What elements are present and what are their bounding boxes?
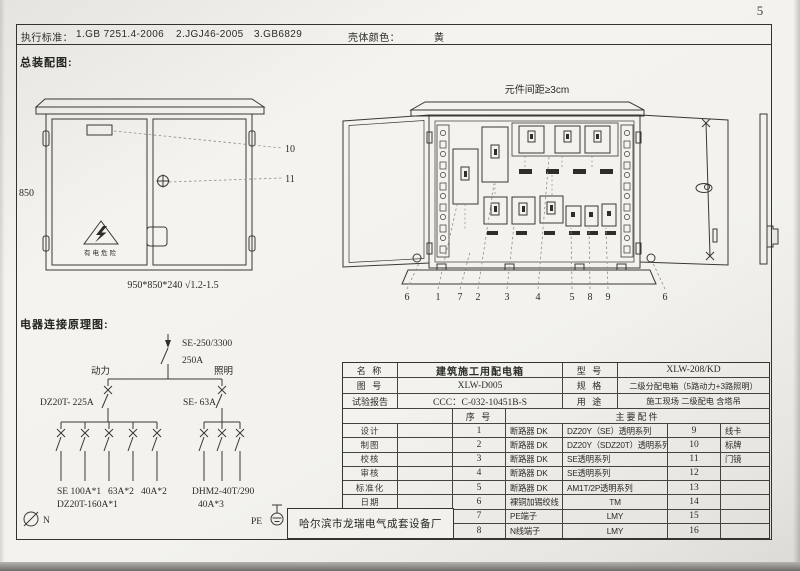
part-row-name: 断路器 DK bbox=[506, 438, 563, 452]
part-row-seq2: 12 bbox=[668, 467, 721, 481]
danger-label: 有电危险 bbox=[84, 248, 118, 257]
open-view-callouts: 6 1 7 2 3 4 5 8 9 6 bbox=[405, 292, 668, 303]
part-row-series: LMY bbox=[563, 524, 668, 538]
svg-text:40A*2: 40A*2 bbox=[141, 487, 167, 497]
part-row-name2: 线卡 bbox=[721, 424, 769, 438]
drawing-no-label: 图 号 bbox=[343, 378, 398, 394]
part-row-series: DZ20Y（SDZ20T）透明系列 bbox=[563, 438, 668, 452]
svg-text:N: N bbox=[43, 516, 50, 526]
role-design: 设计 bbox=[343, 424, 398, 438]
svg-text:SE-250/3300: SE-250/3300 bbox=[182, 339, 232, 349]
assembly-section-title: 总装配图: bbox=[20, 54, 73, 70]
shell-color-value: 黄 bbox=[434, 29, 444, 44]
door-stop bbox=[147, 227, 167, 246]
part-row-series: SE透明系列 bbox=[563, 467, 668, 481]
seq-header: 序 号 bbox=[453, 409, 506, 424]
spec-label: 规 格 bbox=[563, 378, 618, 394]
part-row-seq: 7 bbox=[453, 510, 506, 524]
part-row-seq2: 13 bbox=[668, 481, 721, 495]
svg-text:9: 9 bbox=[606, 292, 611, 303]
size-note: 950*850*240 √1.2-1.5 bbox=[127, 280, 218, 291]
svg-text:PE: PE bbox=[251, 517, 262, 527]
part-row-name: 断路器 DK bbox=[506, 453, 563, 467]
part-row-series: SE透明系列 bbox=[563, 453, 668, 467]
svg-text:7: 7 bbox=[458, 292, 463, 303]
svg-text:6: 6 bbox=[663, 292, 668, 303]
role-draft: 制图 bbox=[343, 438, 398, 452]
usage-value: 施工现场 二级配电 含塔吊 bbox=[618, 394, 769, 409]
part-row-seq2: 16 bbox=[668, 524, 721, 538]
part-row-seq2: 14 bbox=[668, 495, 721, 509]
part-row-series: AM1T/2P透明系列 bbox=[563, 481, 668, 495]
svg-text:动力: 动力 bbox=[91, 365, 110, 377]
svg-text:8: 8 bbox=[588, 292, 593, 303]
part-row-name2 bbox=[721, 495, 769, 509]
blank-cell bbox=[398, 453, 453, 467]
part-row-seq: 6 bbox=[453, 495, 506, 509]
part-row-series: TM bbox=[563, 495, 668, 509]
report-label: 试验报告 bbox=[343, 394, 398, 409]
cabinet-front-view bbox=[36, 99, 282, 270]
name-label: 名 称 bbox=[343, 363, 398, 378]
schematic-section-title: 电器连接原理图: bbox=[20, 316, 109, 332]
svg-text:2: 2 bbox=[476, 292, 481, 303]
cabinet-open-view bbox=[343, 102, 778, 289]
part-row-name: 断路器 DK bbox=[506, 481, 563, 495]
part-row-name2 bbox=[721, 481, 769, 495]
spec-value: 二级分配电箱（5路动力+3路照明） bbox=[618, 378, 769, 394]
svg-text:DHM2-40T/290: DHM2-40T/290 bbox=[192, 487, 255, 497]
neutral-symbol bbox=[24, 512, 38, 526]
svg-text:3: 3 bbox=[505, 292, 510, 303]
role-standardize: 标准化 bbox=[343, 481, 398, 495]
parts-header: 主要配件 bbox=[506, 409, 769, 424]
part-row-seq: 5 bbox=[453, 481, 506, 495]
header-divider bbox=[16, 44, 771, 45]
electric-danger-icon bbox=[84, 221, 118, 244]
blank-cell bbox=[398, 438, 453, 452]
blank-cell bbox=[398, 467, 453, 481]
height-dimension: 850 bbox=[19, 188, 34, 199]
part-row-name: 裸铜加锡绞线 bbox=[506, 495, 563, 509]
part-row-seq2: 11 bbox=[668, 453, 721, 467]
door-handle-lock bbox=[157, 175, 170, 188]
svg-text:SE- 63A: SE- 63A bbox=[183, 398, 216, 408]
blank-cell bbox=[398, 481, 453, 495]
part-row-name2 bbox=[721, 467, 769, 481]
usage-label: 用 途 bbox=[563, 394, 618, 409]
svg-text:DZ20T- 225A: DZ20T- 225A bbox=[40, 398, 94, 408]
standard-2: 2.JGJ46-2005 bbox=[176, 29, 244, 40]
part-row-seq2: 9 bbox=[668, 424, 721, 438]
blank-cell bbox=[343, 409, 453, 424]
svg-text:40A*3: 40A*3 bbox=[198, 500, 224, 510]
svg-text:5: 5 bbox=[570, 292, 575, 303]
part-row-name: 断路器 DK bbox=[506, 424, 563, 438]
part-row-seq: 2 bbox=[453, 438, 506, 452]
part-row-seq: 3 bbox=[453, 453, 506, 467]
name-value: 建筑施工用配电箱 bbox=[398, 363, 563, 378]
svg-text:DZ20T-160A*1: DZ20T-160A*1 bbox=[57, 500, 118, 510]
model-value: XLW-208/KD bbox=[618, 363, 769, 378]
model-label: 型 号 bbox=[563, 363, 618, 378]
part-row-name: PE端子 bbox=[506, 510, 563, 524]
svg-text:250A: 250A bbox=[182, 356, 203, 366]
part-row-name2: 标牌 bbox=[721, 438, 769, 452]
wiring-schematic bbox=[24, 334, 283, 526]
part-row-name2: 门镜 bbox=[721, 453, 769, 467]
pe-earth-symbol bbox=[271, 505, 283, 525]
part-row-seq2: 15 bbox=[668, 510, 721, 524]
part-row-seq2: 10 bbox=[668, 438, 721, 452]
shell-color-label: 壳体颜色： bbox=[348, 29, 400, 44]
part-row-name: N线端子 bbox=[506, 524, 563, 538]
report-value: CCC：C-032-10451B-S bbox=[398, 394, 563, 409]
drawing-no-value: XLW-D005 bbox=[398, 378, 563, 394]
manufacturer-name: 哈尔滨市龙瑞电气成套设备厂 bbox=[299, 516, 442, 531]
part-row-series: LMY bbox=[563, 510, 668, 524]
svg-text:4: 4 bbox=[536, 292, 541, 303]
right-door-lock-rod bbox=[640, 115, 728, 265]
role-check: 校核 bbox=[343, 453, 398, 467]
part-row-name: 断路器 DK bbox=[506, 467, 563, 481]
page-number: 5 bbox=[748, 3, 772, 19]
standards-label: 执行标准： bbox=[21, 29, 73, 44]
svg-text:6: 6 bbox=[405, 292, 410, 303]
nameplate bbox=[87, 125, 112, 135]
spacing-note: 元件间距≥3cm bbox=[505, 83, 569, 96]
breaker-modules bbox=[453, 126, 616, 226]
part-row-name2 bbox=[721, 524, 769, 538]
manufacturer-name-box: 哈尔滨市龙瑞电气成套设备厂 bbox=[287, 508, 454, 539]
part-row-seq: 4 bbox=[453, 467, 506, 481]
part-row-seq: 1 bbox=[453, 424, 506, 438]
callout-10: 10 bbox=[285, 144, 295, 155]
role-review: 审核 bbox=[343, 467, 398, 481]
svg-text:1: 1 bbox=[436, 292, 441, 303]
part-row-seq: 8 bbox=[453, 524, 506, 538]
svg-text:63A*2: 63A*2 bbox=[108, 487, 134, 497]
blank-cell bbox=[398, 424, 453, 438]
part-row-name2 bbox=[721, 510, 769, 524]
standard-1: 1.GB 7251.4-2006 bbox=[76, 29, 164, 40]
schematic-labels: SE-250/3300 250A 动力 照明 DZ20T- 225A SE- 6… bbox=[40, 339, 262, 527]
svg-text:照明: 照明 bbox=[214, 366, 233, 377]
standard-3: 3.GB6829 bbox=[254, 29, 302, 40]
svg-text:SE 100A*1: SE 100A*1 bbox=[57, 487, 101, 497]
part-row-series: DZ20Y（SE）透明系列 bbox=[563, 424, 668, 438]
cabinet-side-view bbox=[760, 114, 778, 264]
callout-11: 11 bbox=[285, 174, 295, 185]
